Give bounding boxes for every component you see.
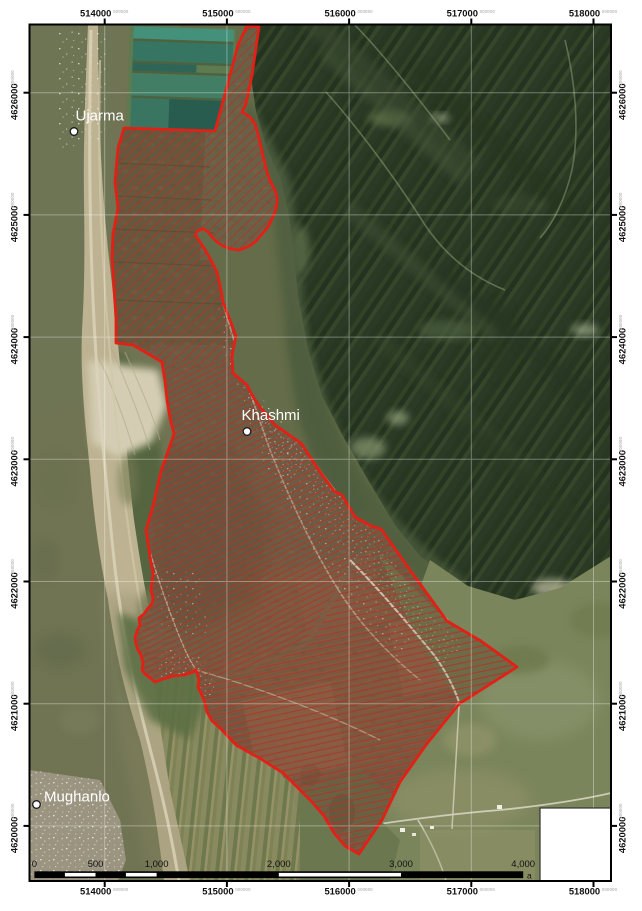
svg-text:Ujarma: Ujarma bbox=[76, 108, 125, 125]
svg-text:000000: 000000 bbox=[10, 803, 15, 819]
svg-text:515000: 515000 bbox=[202, 886, 233, 897]
svg-text:000000: 000000 bbox=[10, 681, 15, 697]
svg-text:0: 0 bbox=[32, 859, 37, 870]
svg-text:517000: 517000 bbox=[447, 8, 478, 19]
svg-text:4,000: 4,000 bbox=[511, 859, 535, 870]
svg-text:4621000: 4621000 bbox=[617, 694, 628, 731]
svg-text:514000: 514000 bbox=[80, 886, 111, 897]
svg-text:4626000: 4626000 bbox=[9, 83, 20, 120]
svg-text:4622000: 4622000 bbox=[9, 572, 20, 609]
svg-text:000000: 000000 bbox=[235, 887, 251, 892]
svg-text:000000: 000000 bbox=[618, 681, 623, 697]
svg-text:518000: 518000 bbox=[569, 8, 600, 19]
svg-text:000000: 000000 bbox=[113, 9, 129, 14]
svg-text:4623000: 4623000 bbox=[9, 450, 20, 487]
svg-text:000000: 000000 bbox=[10, 192, 15, 208]
svg-text:000000: 000000 bbox=[10, 437, 15, 453]
svg-text:000000: 000000 bbox=[357, 887, 373, 892]
svg-text:4624000: 4624000 bbox=[9, 328, 20, 365]
svg-text:000000: 000000 bbox=[618, 803, 623, 819]
svg-text:4626000: 4626000 bbox=[617, 83, 628, 120]
svg-text:000000: 000000 bbox=[480, 9, 496, 14]
svg-text:000000: 000000 bbox=[480, 887, 496, 892]
svg-text:000000: 000000 bbox=[618, 314, 623, 330]
svg-text:4624000: 4624000 bbox=[617, 328, 628, 365]
svg-text:000000: 000000 bbox=[235, 9, 251, 14]
svg-text:Mughanlo: Mughanlo bbox=[44, 789, 110, 806]
svg-text:518000: 518000 bbox=[569, 886, 600, 897]
svg-text:516000: 516000 bbox=[324, 8, 355, 19]
svg-text:4623000: 4623000 bbox=[617, 450, 628, 487]
svg-text:000000: 000000 bbox=[618, 559, 623, 575]
svg-text:000000: 000000 bbox=[357, 9, 373, 14]
svg-text:000000: 000000 bbox=[10, 559, 15, 575]
svg-text:4620000: 4620000 bbox=[9, 817, 20, 854]
svg-text:515000: 515000 bbox=[202, 8, 233, 19]
svg-text:000000: 000000 bbox=[113, 887, 129, 892]
svg-text:000000: 000000 bbox=[618, 192, 623, 208]
svg-text:4625000: 4625000 bbox=[617, 206, 628, 243]
svg-text:000000: 000000 bbox=[10, 314, 15, 330]
svg-text:2,000: 2,000 bbox=[267, 859, 291, 870]
svg-text:4621000: 4621000 bbox=[9, 694, 20, 731]
svg-text:1,000: 1,000 bbox=[145, 859, 169, 870]
svg-text:500: 500 bbox=[88, 859, 104, 870]
svg-text:000000: 000000 bbox=[602, 887, 618, 892]
svg-text:000000: 000000 bbox=[10, 70, 15, 86]
svg-text:516000: 516000 bbox=[324, 886, 355, 897]
svg-text:4625000: 4625000 bbox=[9, 206, 20, 243]
svg-text:4622000: 4622000 bbox=[617, 572, 628, 609]
svg-text:a: a bbox=[527, 871, 532, 881]
svg-text:000000: 000000 bbox=[618, 437, 623, 453]
svg-text:3,000: 3,000 bbox=[389, 859, 413, 870]
svg-text:517000: 517000 bbox=[447, 886, 478, 897]
svg-text:000000: 000000 bbox=[618, 70, 623, 86]
svg-text:4620000: 4620000 bbox=[617, 817, 628, 854]
svg-text:000000: 000000 bbox=[602, 9, 618, 14]
svg-text:514000: 514000 bbox=[80, 8, 111, 19]
svg-text:Khashmi: Khashmi bbox=[242, 407, 300, 424]
